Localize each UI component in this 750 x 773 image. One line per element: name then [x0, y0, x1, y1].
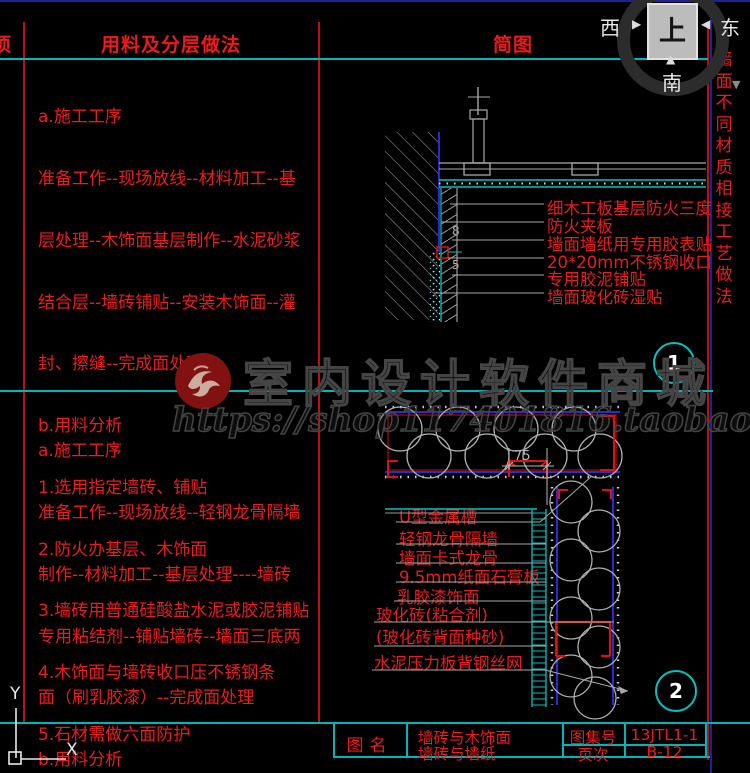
rotate-left-arrow-icon[interactable]: ◀ [701, 18, 710, 30]
viewcube-south[interactable]: 南 [662, 67, 682, 96]
rotate-right-arrow-icon[interactable]: ▶ [632, 18, 641, 30]
cad-viewport[interactable]: 项 用料及分层做法 简图 墙面不同材质相接工艺做法 a.施工工序 准备工作--现… [0, 0, 750, 773]
viewcube-west[interactable]: 西 [600, 12, 620, 41]
rotate-up-arrow-icon[interactable]: ▲ [666, 53, 675, 65]
drawing-linework [0, 0, 750, 773]
detail-2-drawing [372, 407, 628, 719]
viewcube-menu-arrow-icon[interactable]: ▼ [732, 78, 740, 91]
ucs-icon [9, 708, 66, 764]
detail-1-drawing [385, 87, 706, 322]
viewcube-east[interactable]: 东 [720, 12, 740, 41]
viewcube-top-face-label: 上 [659, 16, 686, 47]
